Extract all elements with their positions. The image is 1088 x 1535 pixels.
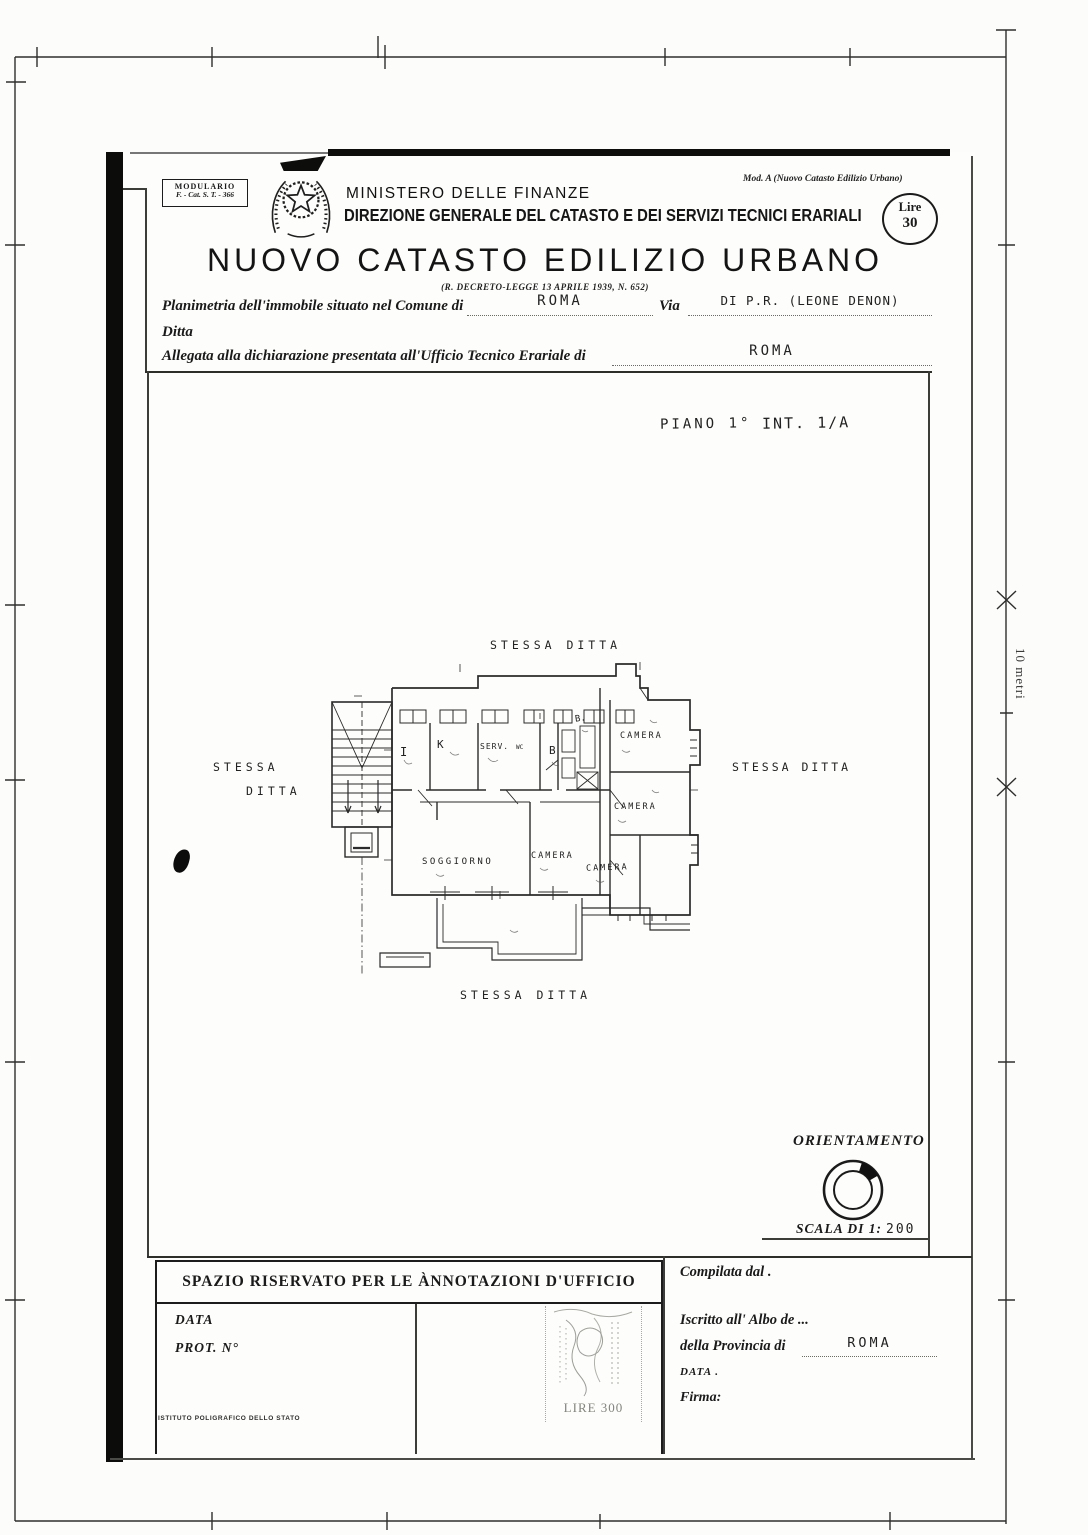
- neighbor-label-right: STESSA DITTA: [732, 760, 851, 774]
- orientation-bottom-rule: [762, 1238, 929, 1240]
- via-value: DI P.R. (LEONE DENON): [720, 293, 899, 308]
- compass-icon: [818, 1154, 888, 1226]
- decree-reference: (R. DECRETO-LEGGE 13 APRILE 1939, N. 652…: [150, 282, 940, 292]
- provincia-label: della Provincia di: [680, 1338, 786, 1355]
- comune-value: ROMA: [537, 293, 583, 309]
- floor-plan-drawing: [300, 630, 720, 1010]
- ditta-label: Ditta: [162, 324, 193, 341]
- comune-field: ROMA: [467, 292, 653, 316]
- compilata-label: Compilata dal .: [680, 1264, 771, 1281]
- directorate-name: DIREZIONE GENERALE DEL CATASTO E DEI SER…: [344, 205, 862, 226]
- scale-bar-label: 10 metri: [1012, 648, 1028, 768]
- scale-note-value: 200: [886, 1222, 915, 1237]
- floor-plan: I K SERV. WC B B. CAMERA CAMERA CAMERA C…: [300, 630, 720, 1010]
- plan-area-right-rule: [928, 371, 930, 1256]
- document-sheet: MODULARIO F. - Cat. S. T. - 366 MINISTER…: [110, 152, 975, 1462]
- room-label-wc: WC: [516, 744, 523, 751]
- provincia-field: ROMA: [802, 1334, 937, 1357]
- sheet-top-edge: [328, 149, 950, 156]
- sheet-right-edge: [971, 156, 973, 1460]
- room-label-camera-3: CAMERA: [531, 851, 574, 861]
- sheet-bottom-edge: [110, 1458, 975, 1460]
- mod-a-note: Mod. A (Nuovo Catasto Edilizio Urbano): [743, 174, 903, 184]
- compiler-divider-rule: [663, 1256, 665, 1454]
- revenue-stamp-figure: [546, 1306, 641, 1398]
- firma-label: Firma:: [680, 1390, 721, 1406]
- room-label-ingresso: I: [400, 745, 407, 759]
- annotations-table: SPAZIO RISERVATO PER LE ÀNNOTAZIONI D'UF…: [155, 1260, 663, 1454]
- iscritto-label: Iscritto all' Albo de ...: [680, 1312, 809, 1329]
- via-label: Via: [659, 298, 680, 315]
- room-label-cucina: K: [437, 738, 444, 751]
- room-label-camera-2: CAMERA: [614, 802, 657, 812]
- ufficio-field: ROMA: [612, 342, 932, 366]
- room-label-camera-1: CAMERA: [620, 731, 663, 741]
- scanned-cadastral-document: { "page": { "scale_bar_label": "10 metri…: [0, 0, 1088, 1535]
- state-emblem-icon: [265, 168, 337, 244]
- ink-blot: [171, 848, 191, 875]
- revenue-stamp-value: LIRE 300: [546, 1400, 641, 1416]
- allegata-label: Allegata alla dichiarazione presentata a…: [162, 348, 586, 365]
- annotations-column-divider: [415, 1304, 417, 1454]
- ufficio-value: ROMA: [749, 343, 795, 359]
- sheet-top-edge-thin: [130, 152, 328, 154]
- room-label-soggiorno: SOGGIORNO: [422, 857, 493, 867]
- room-label-bagno: B: [549, 744, 556, 757]
- plan-area-left-rule: [147, 371, 149, 1256]
- header-left-jog: [123, 188, 146, 190]
- provincia-value: ROMA: [847, 1335, 892, 1351]
- room-label-camera-4: CAMERA: [586, 862, 629, 873]
- scale-note: SCALA DI 1: 200: [796, 1220, 916, 1238]
- via-field: DI P.R. (LEONE DENON): [688, 292, 932, 316]
- header-left-rule: [145, 188, 147, 371]
- neighbor-label-left-line1: STESSA: [213, 760, 279, 774]
- header-bottom-rule: [145, 371, 932, 373]
- orientation-label: ORIENTAMENTO: [793, 1133, 925, 1150]
- neighbor-label-left-line2: DITTA: [246, 784, 301, 798]
- revenue-stamp: LIRE 300: [545, 1306, 642, 1422]
- stamp-duty-label: Lire: [884, 201, 936, 215]
- compiler-data-label: DATA .: [680, 1366, 719, 1378]
- modulario-line2: F. - Cat. S. T. - 366: [163, 191, 247, 200]
- document-title: NUOVO CATASTO EDILIZIO URBANO: [150, 242, 940, 279]
- stamp-duty-oval: Lire 30: [882, 193, 938, 245]
- modulario-box: MODULARIO F. - Cat. S. T. - 366: [162, 179, 248, 207]
- annotations-prot-label: PROT. N°: [175, 1340, 239, 1356]
- ministry-name: MINISTERO DELLE FINANZE: [346, 185, 591, 203]
- footer-section-top-rule: [147, 1256, 972, 1258]
- scale-note-label: SCALA DI 1:: [796, 1221, 882, 1236]
- planimetria-label: Planimetria dell'immobile situato nel Co…: [162, 298, 463, 315]
- annotations-header: SPAZIO RISERVATO PER LE ÀNNOTAZIONI D'UF…: [155, 1260, 663, 1304]
- floor-annotation: PIANO 1°: [660, 415, 752, 433]
- unit-annotation: INT. 1/A: [762, 413, 851, 433]
- annotations-header-text: SPAZIO RISERVATO PER LE ÀNNOTAZIONI D'UF…: [182, 1273, 635, 1291]
- stamp-duty-value: 30: [884, 215, 936, 232]
- printer-imprint: ISTITUTO POLIGRAFICO DELLO STATO: [158, 1415, 300, 1422]
- room-label-bagno-piccolo: B.: [574, 713, 586, 724]
- sheet-left-edge: [106, 152, 123, 1462]
- room-label-servizio: SERV.: [480, 742, 509, 751]
- annotations-data-label: DATA: [175, 1312, 214, 1328]
